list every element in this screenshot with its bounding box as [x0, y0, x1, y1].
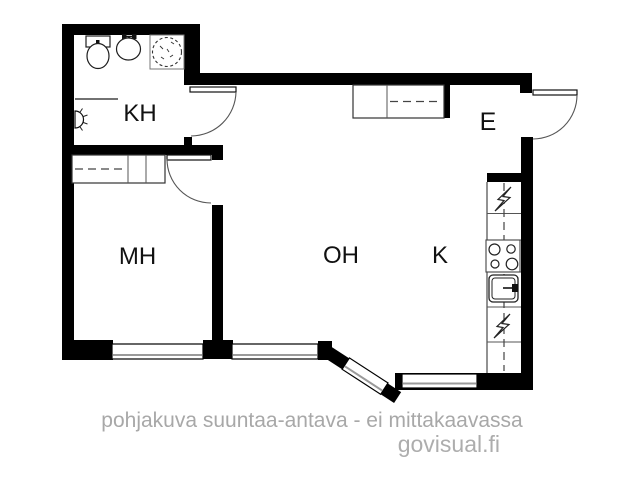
disclaimer-text: pohjakuva suuntaa-antava - ei mittakaava… — [101, 409, 523, 432]
wall-mh-door-stub — [212, 145, 223, 160]
room-label-kh: KH — [123, 100, 156, 127]
dishwasher-lightning-icon — [494, 314, 510, 338]
floor-plan-page: KH MH OH K E pohjakuva suuntaa-antava - … — [0, 0, 640, 480]
room-label-oh: OH — [323, 242, 359, 269]
fridge-lightning-icon — [495, 187, 511, 211]
wall-window-pillar — [203, 340, 233, 359]
wall-entry-jamb — [520, 85, 532, 93]
window-icon — [112, 344, 203, 359]
kitchen-sink-icon — [489, 275, 518, 302]
footer: pohjakuva suuntaa-antava - ei mittakaava… — [101, 409, 523, 457]
watermark-text: govisual.fi — [398, 431, 500, 457]
washbasin-icon — [117, 34, 141, 60]
coat-closet-icon — [353, 85, 444, 118]
wall-corner-bottom-left — [62, 340, 113, 360]
wall-hall-top — [184, 73, 532, 85]
window-icon — [232, 344, 318, 359]
wall-top-kh — [62, 24, 200, 35]
room-label-e: E — [480, 108, 497, 136]
door-swing-icon — [167, 155, 211, 203]
wall-left — [62, 24, 74, 360]
toilet-icon — [86, 36, 110, 69]
wall-kh-mh — [62, 145, 223, 155]
door-swing-icon — [190, 87, 236, 136]
door-swing-icon — [533, 90, 577, 139]
kitchen-fixtures — [486, 182, 521, 373]
wall-kitchen-stub — [487, 173, 521, 182]
wall-lamp-icon — [75, 109, 88, 131]
floor-plan-svg: KH MH OH K E pohjakuva suuntaa-antava - … — [0, 0, 640, 480]
windows — [112, 344, 477, 388]
room-label-mh: MH — [119, 243, 156, 270]
wall-closet-stub — [444, 85, 450, 118]
window-icon — [402, 374, 477, 388]
wall-diagonal — [317, 342, 402, 403]
wardrobe-icon — [72, 155, 165, 183]
wall-right — [521, 137, 533, 377]
room-label-k: K — [432, 242, 448, 269]
wall-mh-oh — [212, 205, 223, 341]
shower-icon — [150, 35, 184, 69]
stove-icon — [486, 240, 520, 272]
